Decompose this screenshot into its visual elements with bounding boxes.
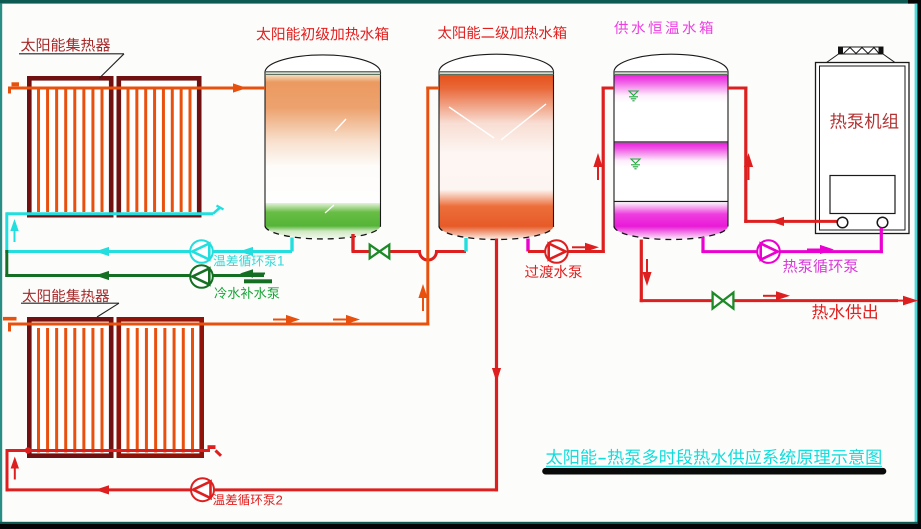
svg-text:1: 1 (277, 254, 284, 269)
svg-text:2: 2 (276, 492, 283, 507)
